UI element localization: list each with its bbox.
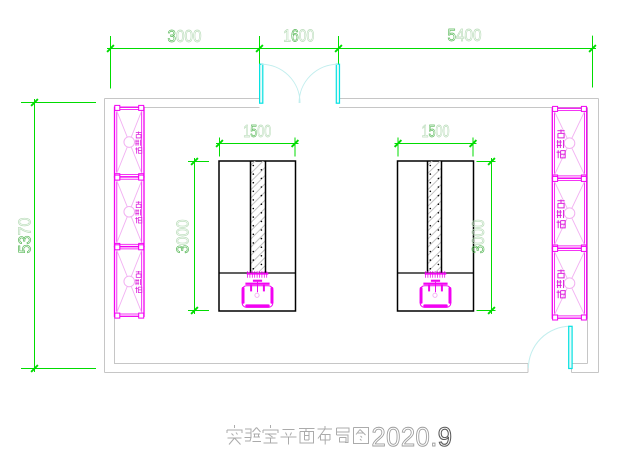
- svg-text:5370: 5370: [15, 217, 35, 253]
- svg-text:1600: 1600: [283, 26, 314, 46]
- svg-text:1500: 1500: [422, 121, 450, 141]
- svg-text:5400: 5400: [448, 25, 482, 45]
- svg-text:3000: 3000: [173, 219, 193, 253]
- svg-text:3000: 3000: [168, 26, 202, 46]
- svg-text:1500: 1500: [243, 121, 271, 141]
- svg-text:3000: 3000: [468, 219, 488, 253]
- svg-text:2020.9: 2020.9: [372, 422, 453, 452]
